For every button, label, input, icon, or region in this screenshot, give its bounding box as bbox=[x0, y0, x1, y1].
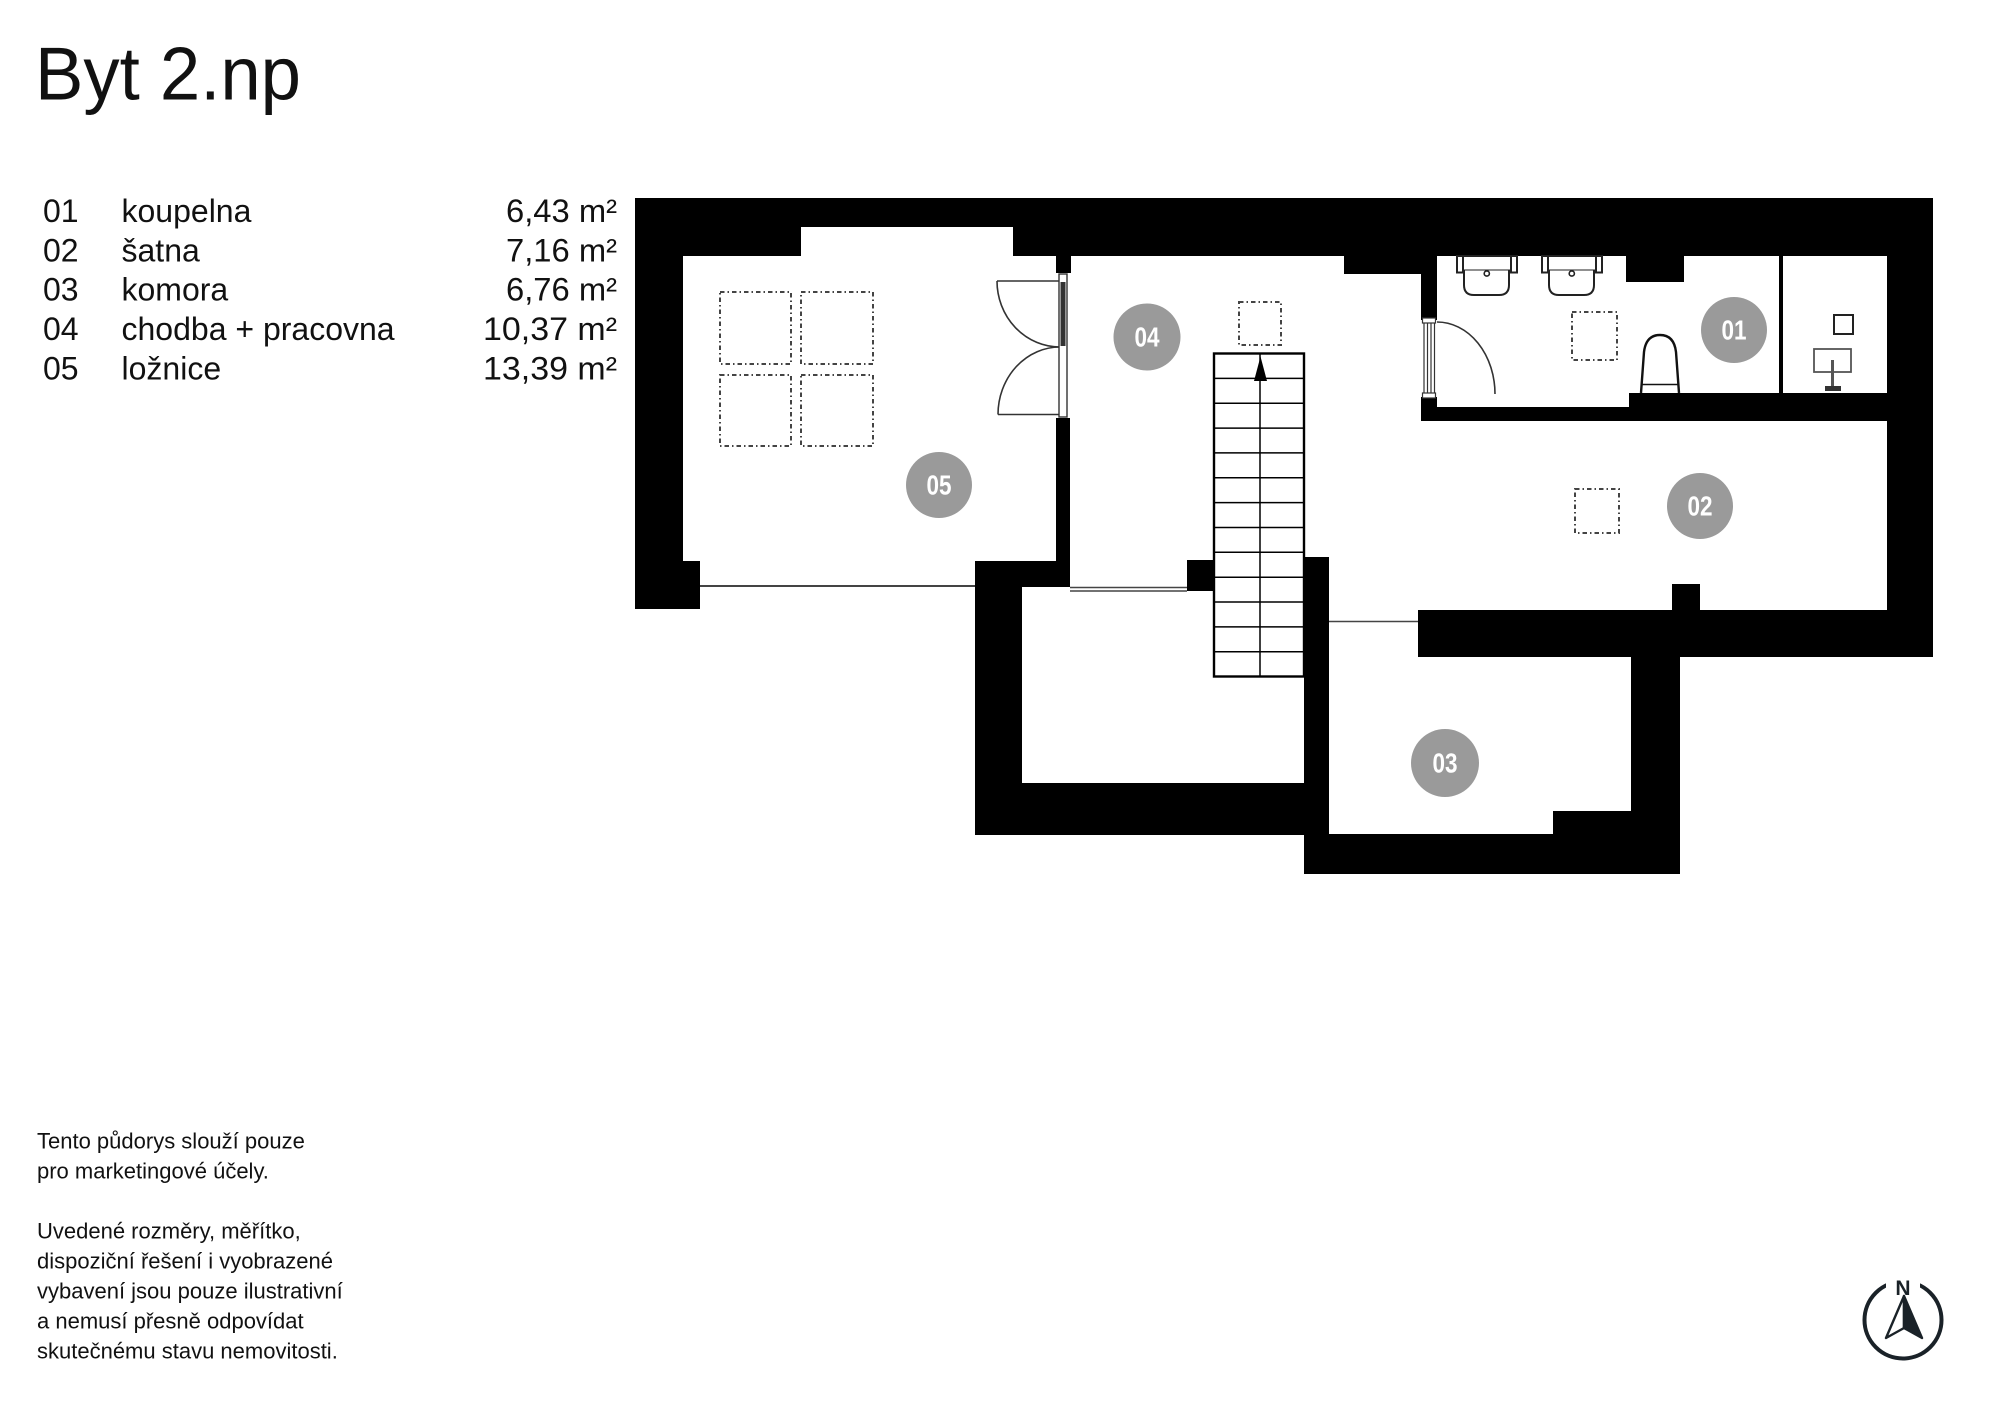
svg-text:05: 05 bbox=[43, 350, 79, 386]
svg-text:03: 03 bbox=[1433, 748, 1458, 779]
svg-text:02: 02 bbox=[1688, 491, 1713, 522]
svg-text:10,37 m²: 10,37 m² bbox=[483, 311, 617, 347]
svg-text:komora: komora bbox=[122, 272, 229, 308]
svg-text:01: 01 bbox=[1722, 315, 1747, 346]
svg-text:04: 04 bbox=[43, 311, 79, 347]
svg-text:02: 02 bbox=[43, 232, 79, 268]
svg-text:koupelna: koupelna bbox=[122, 193, 252, 229]
svg-text:Uvedené rozměry, měřítko,: Uvedené rozměry, měřítko, bbox=[37, 1219, 301, 1244]
svg-text:chodba + pracovna: chodba + pracovna bbox=[122, 311, 395, 347]
svg-text:05: 05 bbox=[927, 470, 952, 501]
svg-text:vybavení jsou pouze ilustrativ: vybavení jsou pouze ilustrativní bbox=[37, 1279, 343, 1304]
svg-text:7,16 m²: 7,16 m² bbox=[506, 232, 617, 268]
svg-text:a nemusí přesně odpovídat: a nemusí přesně odpovídat bbox=[37, 1309, 304, 1334]
svg-text:6,43 m²: 6,43 m² bbox=[506, 193, 617, 229]
svg-text:pro marketingové účely.: pro marketingové účely. bbox=[37, 1159, 269, 1184]
svg-text:Tento půdorys slouží pouze: Tento půdorys slouží pouze bbox=[37, 1129, 305, 1154]
svg-text:03: 03 bbox=[43, 272, 79, 308]
svg-text:skutečnému stavu nemovitosti.: skutečnému stavu nemovitosti. bbox=[37, 1339, 338, 1364]
svg-text:04: 04 bbox=[1135, 322, 1161, 353]
svg-text:ložnice: ložnice bbox=[122, 350, 222, 386]
svg-text:01: 01 bbox=[43, 193, 79, 229]
svg-text:6,76 m²: 6,76 m² bbox=[506, 272, 617, 308]
svg-text:šatna: šatna bbox=[122, 232, 200, 268]
svg-text:13,39 m²: 13,39 m² bbox=[483, 350, 617, 386]
svg-text:Byt 2.np: Byt 2.np bbox=[35, 32, 301, 116]
svg-text:dispoziční řešení i vyobrazené: dispoziční řešení i vyobrazené bbox=[37, 1249, 333, 1274]
